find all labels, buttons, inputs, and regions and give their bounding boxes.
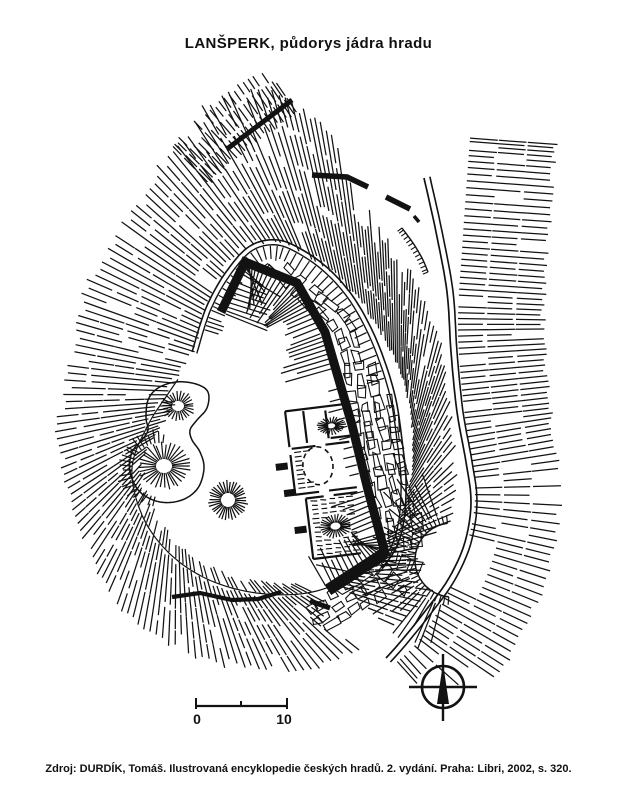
scale-bar: 0 10 xyxy=(193,698,292,727)
page: LANŠPERK, půdorys jádra hradu 0 10 Zdroj… xyxy=(0,0,617,800)
road-line-inner xyxy=(390,177,477,662)
scale-bar-ticks xyxy=(196,698,287,709)
south-gate-dash xyxy=(310,601,330,608)
scarp-edge-ticks xyxy=(398,228,428,274)
broken-wall-dash xyxy=(414,216,419,222)
scale-zero-label: 0 xyxy=(193,711,201,727)
source-citation: Zdroj: DURDÍK, Tomáš. Ilustrovaná encykl… xyxy=(0,763,617,775)
scale-end-label: 10 xyxy=(276,711,292,727)
well-ring-hachures xyxy=(208,480,248,520)
scarp-edge-line xyxy=(402,228,428,272)
compass-rose xyxy=(409,654,477,721)
plan-graphics xyxy=(55,73,562,685)
compass-needle-icon xyxy=(437,663,449,704)
wall-fragment-stub xyxy=(275,462,288,470)
castle-plan-drawing: 0 10 xyxy=(0,0,617,800)
wall-fragment-stub xyxy=(284,489,297,497)
wall-fragment-stub xyxy=(294,526,307,534)
